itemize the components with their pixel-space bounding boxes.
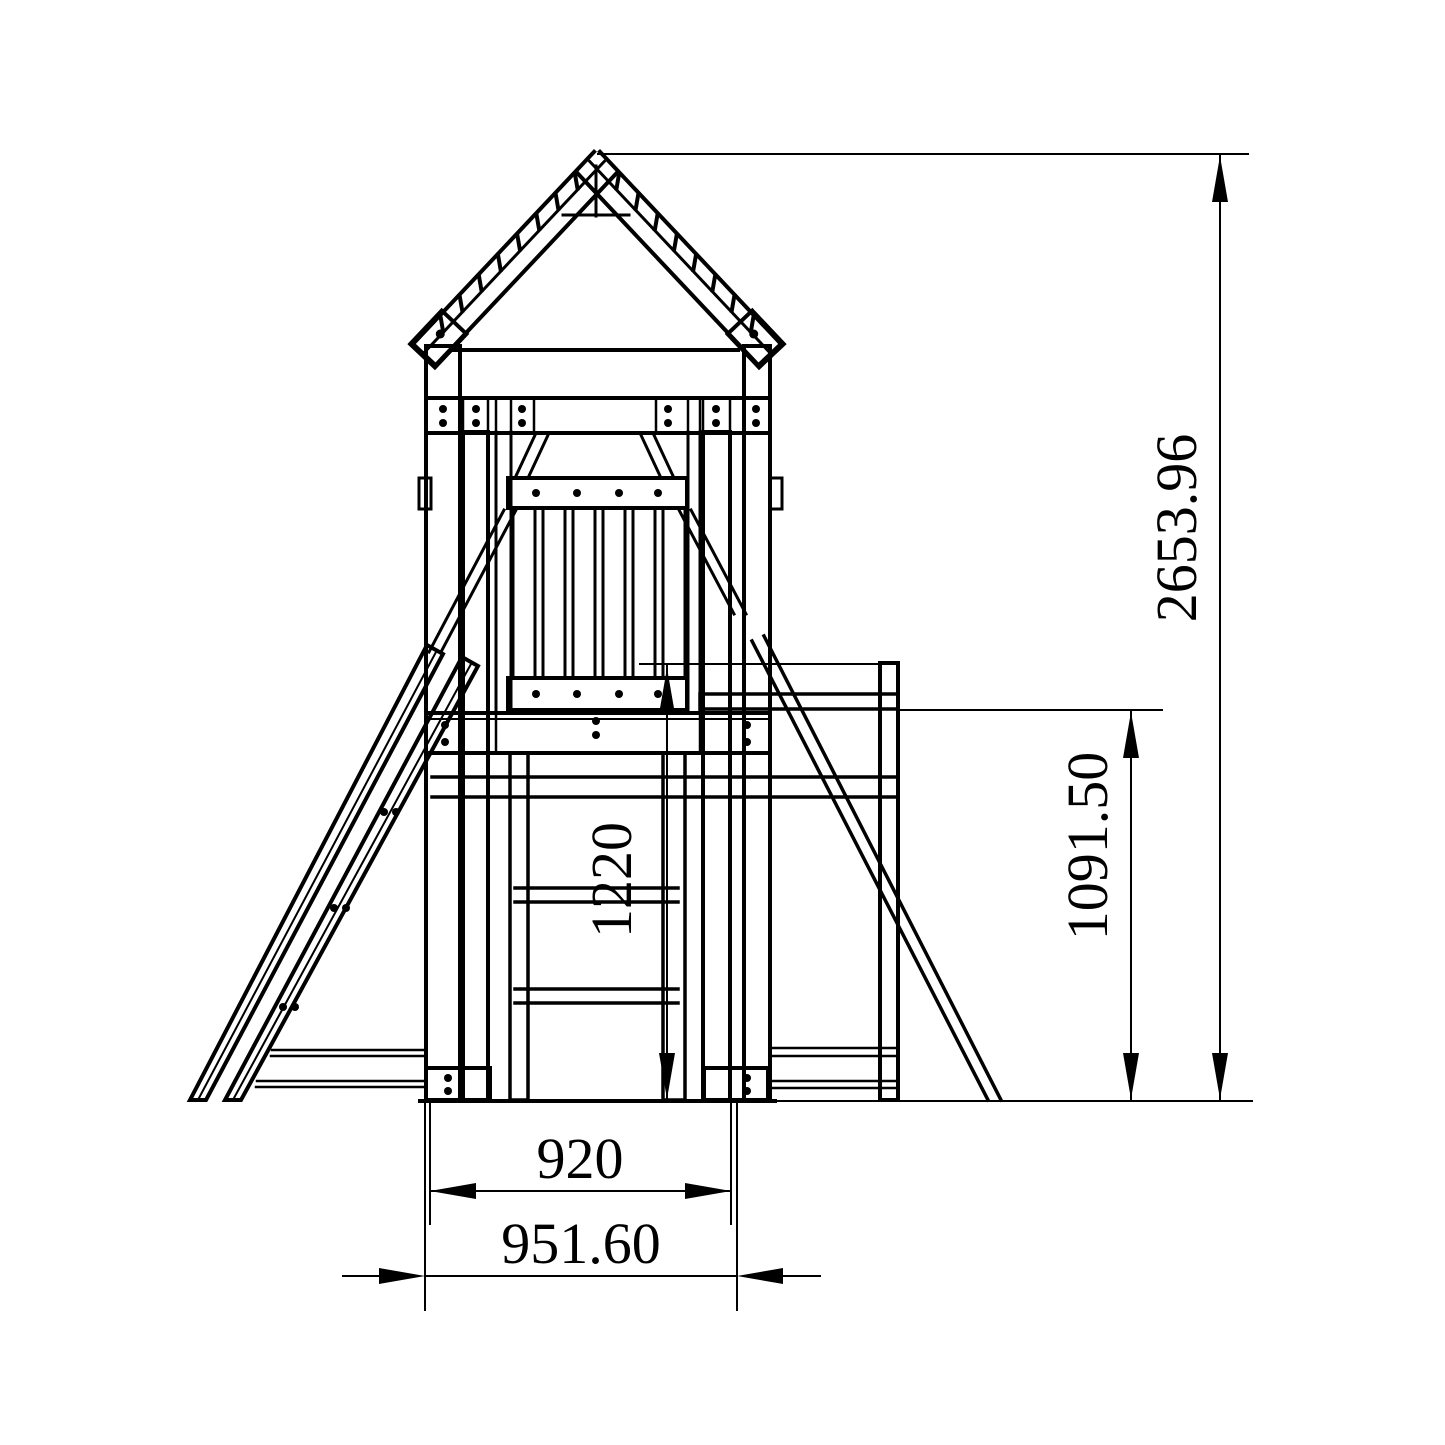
shingle-ticks (434, 174, 583, 331)
overall-height-label: 2653.96 (1144, 434, 1209, 623)
post-right-inner (703, 432, 730, 1100)
side-diagonal-left (429, 510, 504, 652)
roof-strut-right (640, 433, 661, 478)
ladder-rail-left (510, 753, 528, 1100)
shingle-ticks (610, 174, 759, 331)
base (420, 1068, 775, 1101)
beam-height-label: 1091.50 (1055, 752, 1120, 941)
arrowhead-up (659, 668, 675, 714)
dimension-beam-height: 1091.50 (898, 710, 1162, 1099)
arrowhead-up (1123, 712, 1139, 758)
diagonal-brace (764, 636, 1001, 1100)
post-left-inner (463, 432, 488, 1100)
arrowhead-up (1212, 156, 1228, 202)
arrowhead-left (430, 1183, 476, 1199)
arrowhead-right (685, 1183, 731, 1199)
arrowhead-down (1123, 1053, 1139, 1099)
slide-rail-outer (190, 645, 443, 1100)
base-outer-width-label: 951.60 (501, 1211, 661, 1276)
arrowhead-left (737, 1268, 783, 1284)
slide-rail-inner (225, 657, 478, 1100)
balustrade (419, 433, 782, 710)
side-diagonal-left (441, 510, 516, 652)
platform-height-label: 1220 (579, 822, 644, 938)
base-inner-width-label: 920 (537, 1126, 624, 1191)
head-beam (426, 398, 770, 433)
deck-beam (426, 713, 770, 753)
roof (410, 150, 784, 367)
arrowhead-down (1212, 1053, 1228, 1099)
dimension-base-inner-width: 920 (430, 1104, 731, 1224)
roof-strut-right (653, 433, 674, 478)
climbing-frame (640, 636, 1001, 1100)
elevation-drawing: 2653.96 1091.50 1220 920 (0, 0, 1445, 1445)
roof-strut-left (528, 433, 549, 478)
dimension-platform-height: 1220 (579, 666, 675, 1099)
dimensions: 2653.96 1091.50 1220 920 (343, 154, 1248, 1310)
arrowhead-right (379, 1268, 425, 1284)
slats (513, 508, 685, 678)
roof-strut-left (515, 433, 536, 478)
drawing-canvas: 2653.96 1091.50 1220 920 (0, 0, 1445, 1445)
